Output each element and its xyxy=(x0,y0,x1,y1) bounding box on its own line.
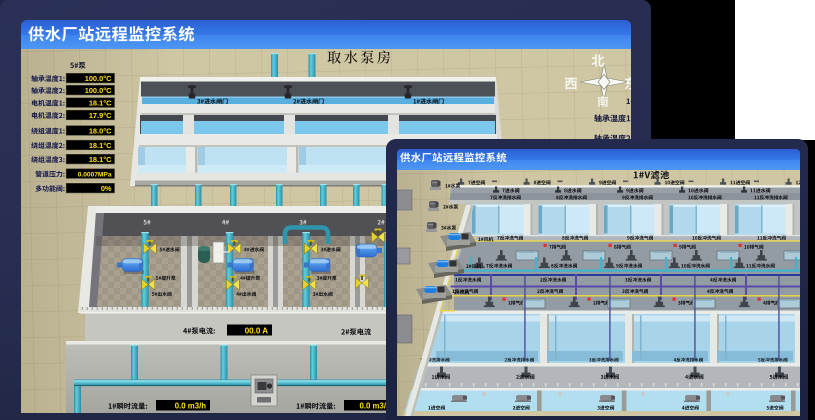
svg-text:0.0 m3/h: 0.0 m3/h xyxy=(175,402,206,411)
svg-text:0%: 0% xyxy=(101,184,112,193)
svg-text:100.0°C: 100.0°C xyxy=(85,86,112,95)
svg-text:18.1°C: 18.1°C xyxy=(89,155,112,164)
svg-text:18.1°C: 18.1°C xyxy=(89,141,112,150)
svg-text:100.0°C: 100.0°C xyxy=(85,74,112,83)
svg-text:18.1°C: 18.1°C xyxy=(89,99,112,108)
svg-text:0.0007MPa: 0.0007MPa xyxy=(78,172,112,179)
svg-text:00.0 A: 00.0 A xyxy=(245,327,268,336)
svg-text:0.0 m3/: 0.0 m3/ xyxy=(360,402,387,411)
svg-text:18.0°C: 18.0°C xyxy=(89,127,112,136)
svg-text:17.9°C: 17.9°C xyxy=(89,111,112,120)
